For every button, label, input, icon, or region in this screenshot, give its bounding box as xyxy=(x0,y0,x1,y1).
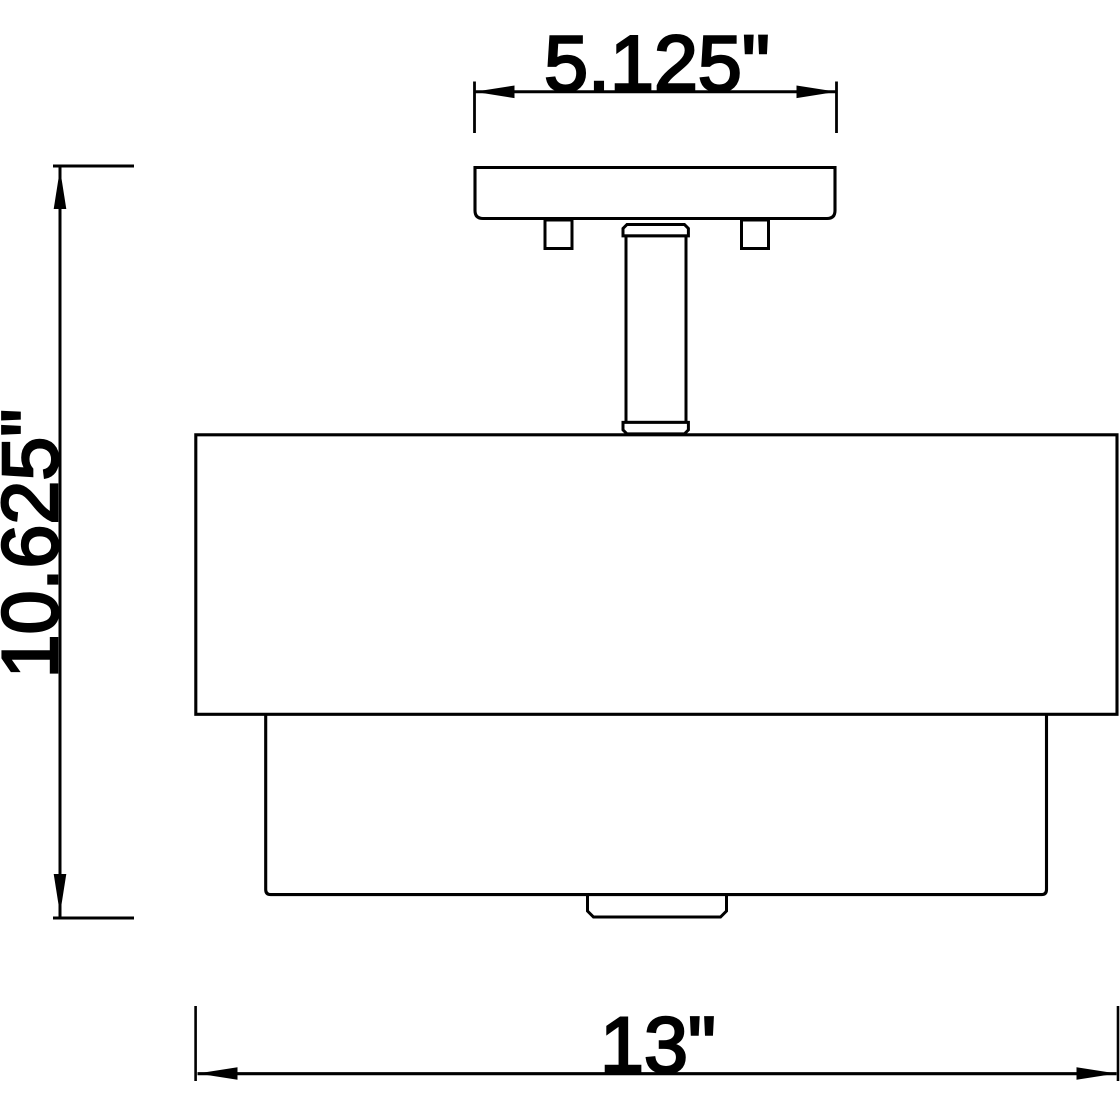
svg-text:13": 13" xyxy=(600,1000,716,1089)
svg-text:10.625": 10.625" xyxy=(0,409,74,679)
svg-text:5.125": 5.125" xyxy=(544,19,770,108)
